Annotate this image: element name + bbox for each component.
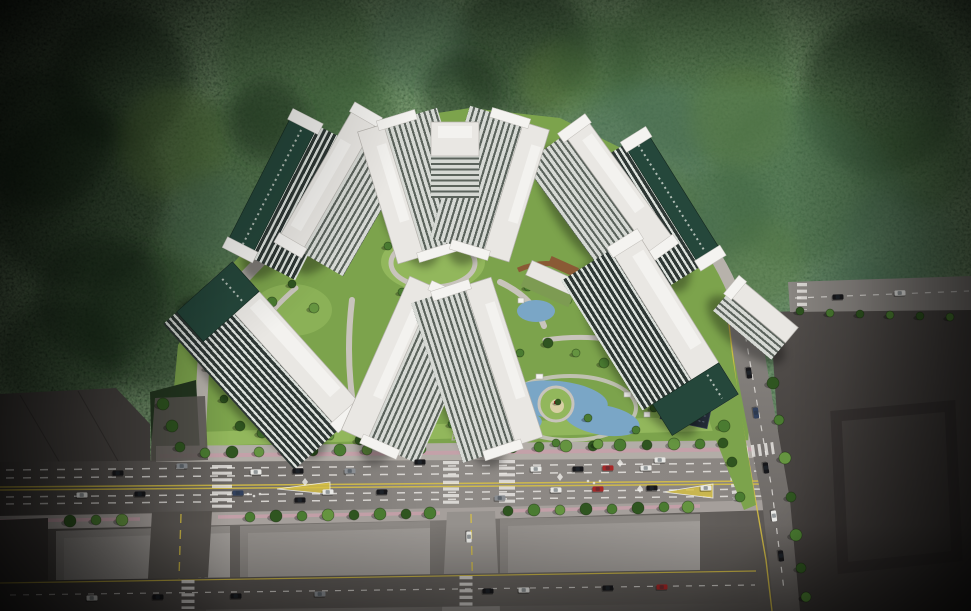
scene-svg: [0, 0, 971, 611]
vignette: [0, 0, 971, 611]
aerial-render: [0, 0, 971, 611]
